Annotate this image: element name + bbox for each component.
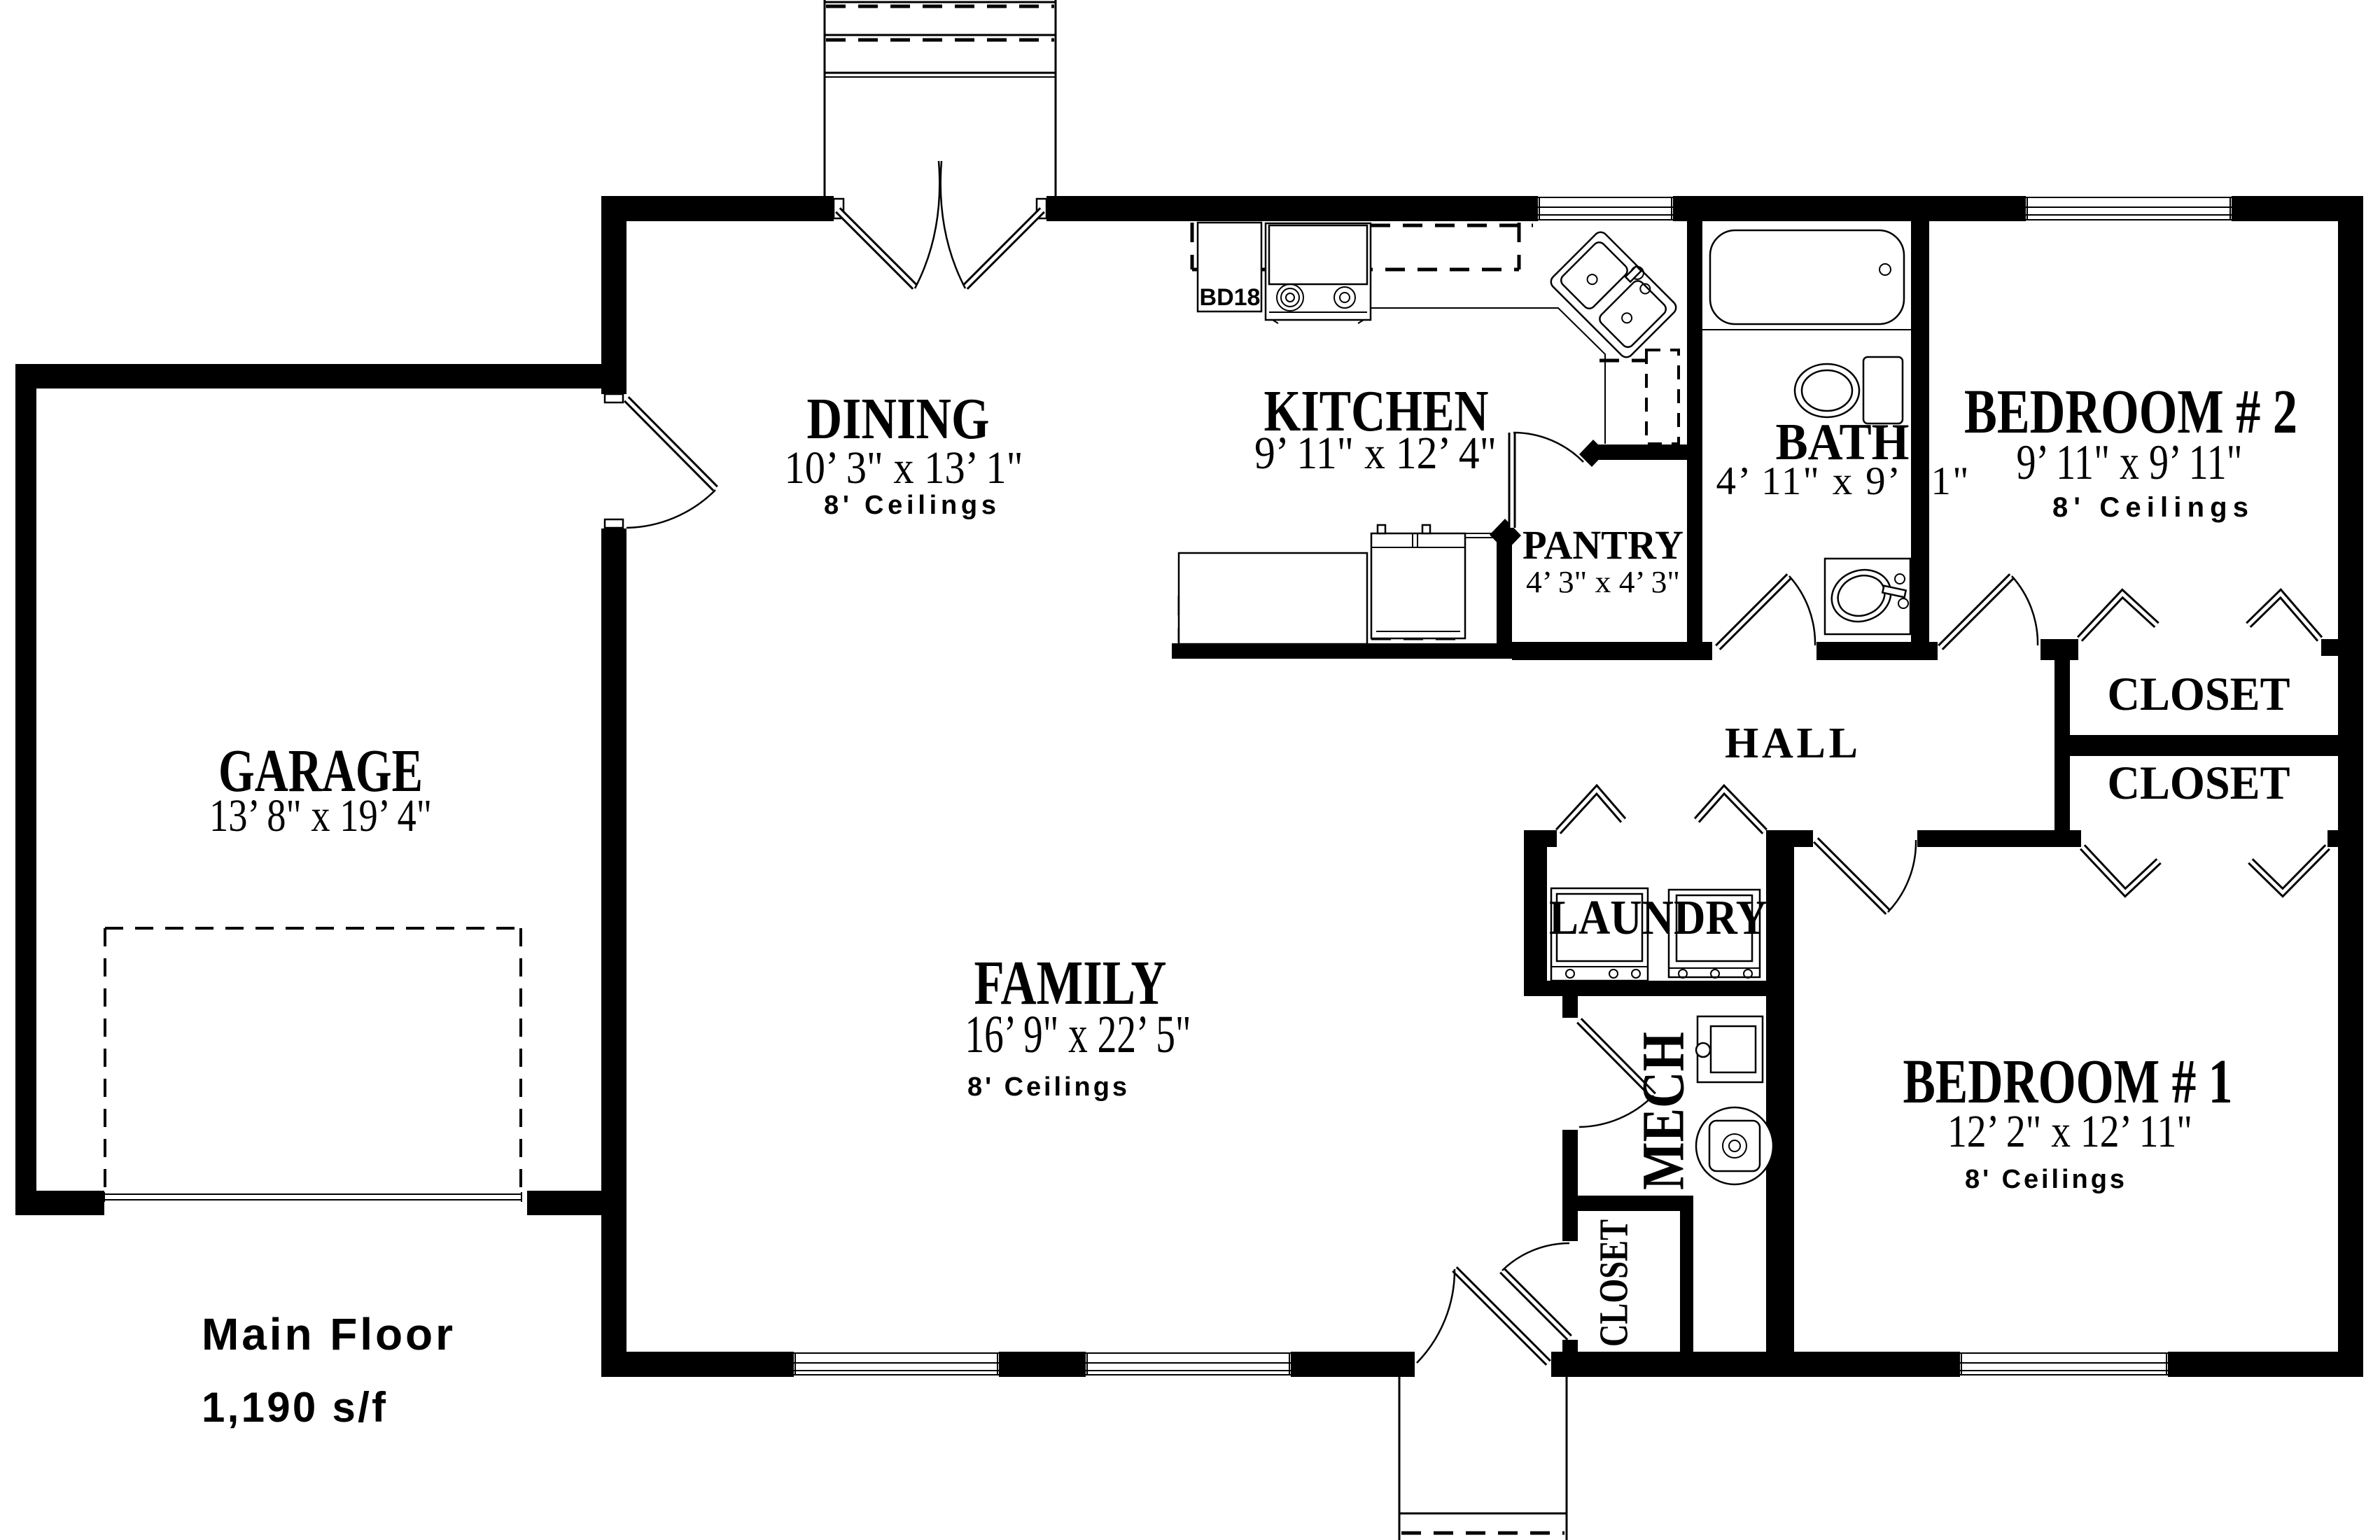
svg-text:CLOSET: CLOSET [2108, 756, 2290, 809]
svg-text:CLOSET: CLOSET [2108, 667, 2290, 720]
svg-text:1,190 s/f: 1,190 s/f [202, 1384, 386, 1431]
svg-text:BD18: BD18 [1200, 284, 1261, 311]
svg-text:9’ 11" x 12’ 4": 9’ 11" x 12’ 4" [1254, 428, 1497, 479]
svg-text:16’ 9" x 22’ 5": 16’ 9" x 22’ 5" [965, 1005, 1191, 1064]
svg-text:CLOSET: CLOSET [1590, 1219, 1636, 1347]
svg-text:HALL: HALL [1725, 720, 1858, 767]
svg-text:LAUNDRY: LAUNDRY [1549, 891, 1767, 945]
svg-text:PANTRY: PANTRY [1522, 522, 1683, 568]
svg-text:12’ 2" x 12’ 11": 12’ 2" x 12’ 11" [1947, 1106, 2192, 1157]
svg-text:13’ 8" x 19’ 4": 13’ 8" x 19’ 4" [209, 790, 432, 841]
svg-text:4’ 3" x 4’ 3": 4’ 3" x 4’ 3" [1526, 565, 1680, 599]
svg-text:MECH: MECH [1630, 1032, 1697, 1190]
svg-text:4’ 11" x 9’ 11": 4’ 11" x 9’ 11" [1716, 459, 1969, 503]
svg-text:9’ 11" x 9’ 11": 9’ 11" x 9’ 11" [2017, 435, 2243, 490]
svg-text:10’ 3" x 13’ 1": 10’ 3" x 13’ 1" [785, 442, 1023, 493]
